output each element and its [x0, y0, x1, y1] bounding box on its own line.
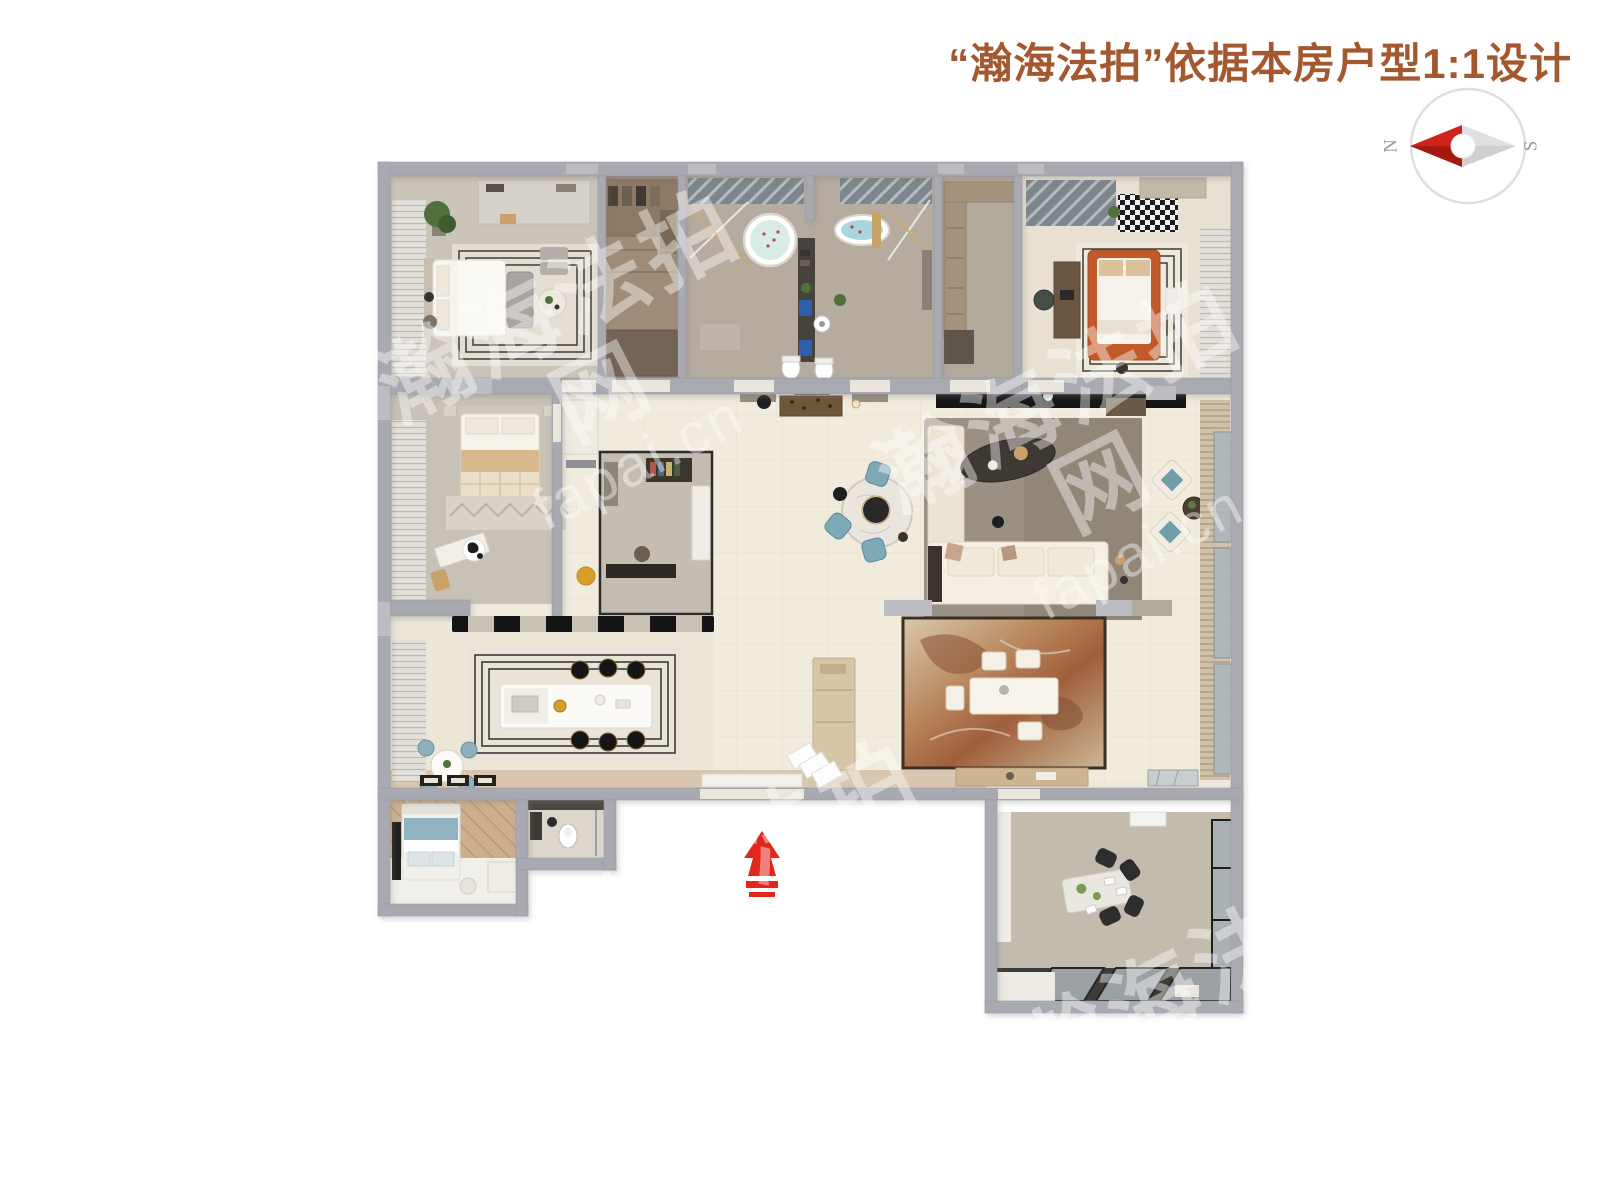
toilet: [815, 358, 833, 381]
yellow-stool: [577, 567, 595, 585]
writing-table: [970, 678, 1058, 714]
door-mats: [420, 775, 496, 786]
window-blinds: [392, 200, 426, 376]
window-blinds: [1200, 228, 1231, 384]
compass-north-label: N: [1380, 139, 1401, 153]
bed: [458, 406, 542, 496]
side-table: [538, 289, 566, 317]
page-title: “瀚海法拍”依据本房户型1:1设计: [948, 30, 1572, 91]
toilet: [782, 356, 800, 379]
desk: [606, 564, 676, 578]
nightstand: [1166, 288, 1182, 314]
window-glass: [1214, 432, 1233, 774]
room-study: [600, 452, 712, 614]
toilet: [559, 824, 577, 848]
patterned-textile: [1118, 194, 1178, 232]
sideboard: [956, 768, 1088, 786]
glass-wall: [1212, 820, 1233, 970]
cowhide-chair: [463, 539, 485, 561]
compass: N S: [1380, 89, 1541, 203]
entrance-arrow: [744, 831, 780, 897]
compass-south-label: S: [1520, 141, 1541, 152]
kitchen-feature-wall: [452, 616, 714, 632]
tv: [392, 822, 401, 880]
bathtub-round: [744, 214, 796, 266]
window-blinds: [392, 640, 426, 782]
glass-floor: [997, 968, 1231, 1001]
cabinet: [692, 486, 710, 560]
room-walkin-closet: [602, 180, 678, 376]
entry-mat: [702, 774, 802, 787]
bookshelf: [646, 458, 692, 482]
kitchen-island: [500, 684, 652, 728]
threshold-marble: [1132, 600, 1172, 616]
bench-sofa: [507, 272, 533, 328]
window: [840, 178, 932, 204]
chevron-rug: [446, 496, 568, 530]
stool: [757, 395, 771, 409]
page: N S 瀚海法拍网 fapai.cn 瀚海法拍网 fapai.cn 瀚海法拍网 …: [0, 0, 1600, 1200]
window-blinds: [392, 420, 426, 606]
bed-master: [424, 258, 505, 338]
bed-small: [402, 804, 460, 880]
storage-step: [944, 330, 974, 364]
floor-plan-image: N S: [0, 0, 1600, 1200]
room-bedroom-master: [392, 180, 598, 376]
hall-cabinet: [560, 400, 598, 454]
window: [1026, 180, 1116, 226]
dresser: [602, 330, 678, 376]
desk-chair: [1034, 290, 1054, 310]
bed-orange: [1088, 250, 1160, 360]
double-vanity: [798, 238, 815, 362]
window: [688, 178, 804, 204]
